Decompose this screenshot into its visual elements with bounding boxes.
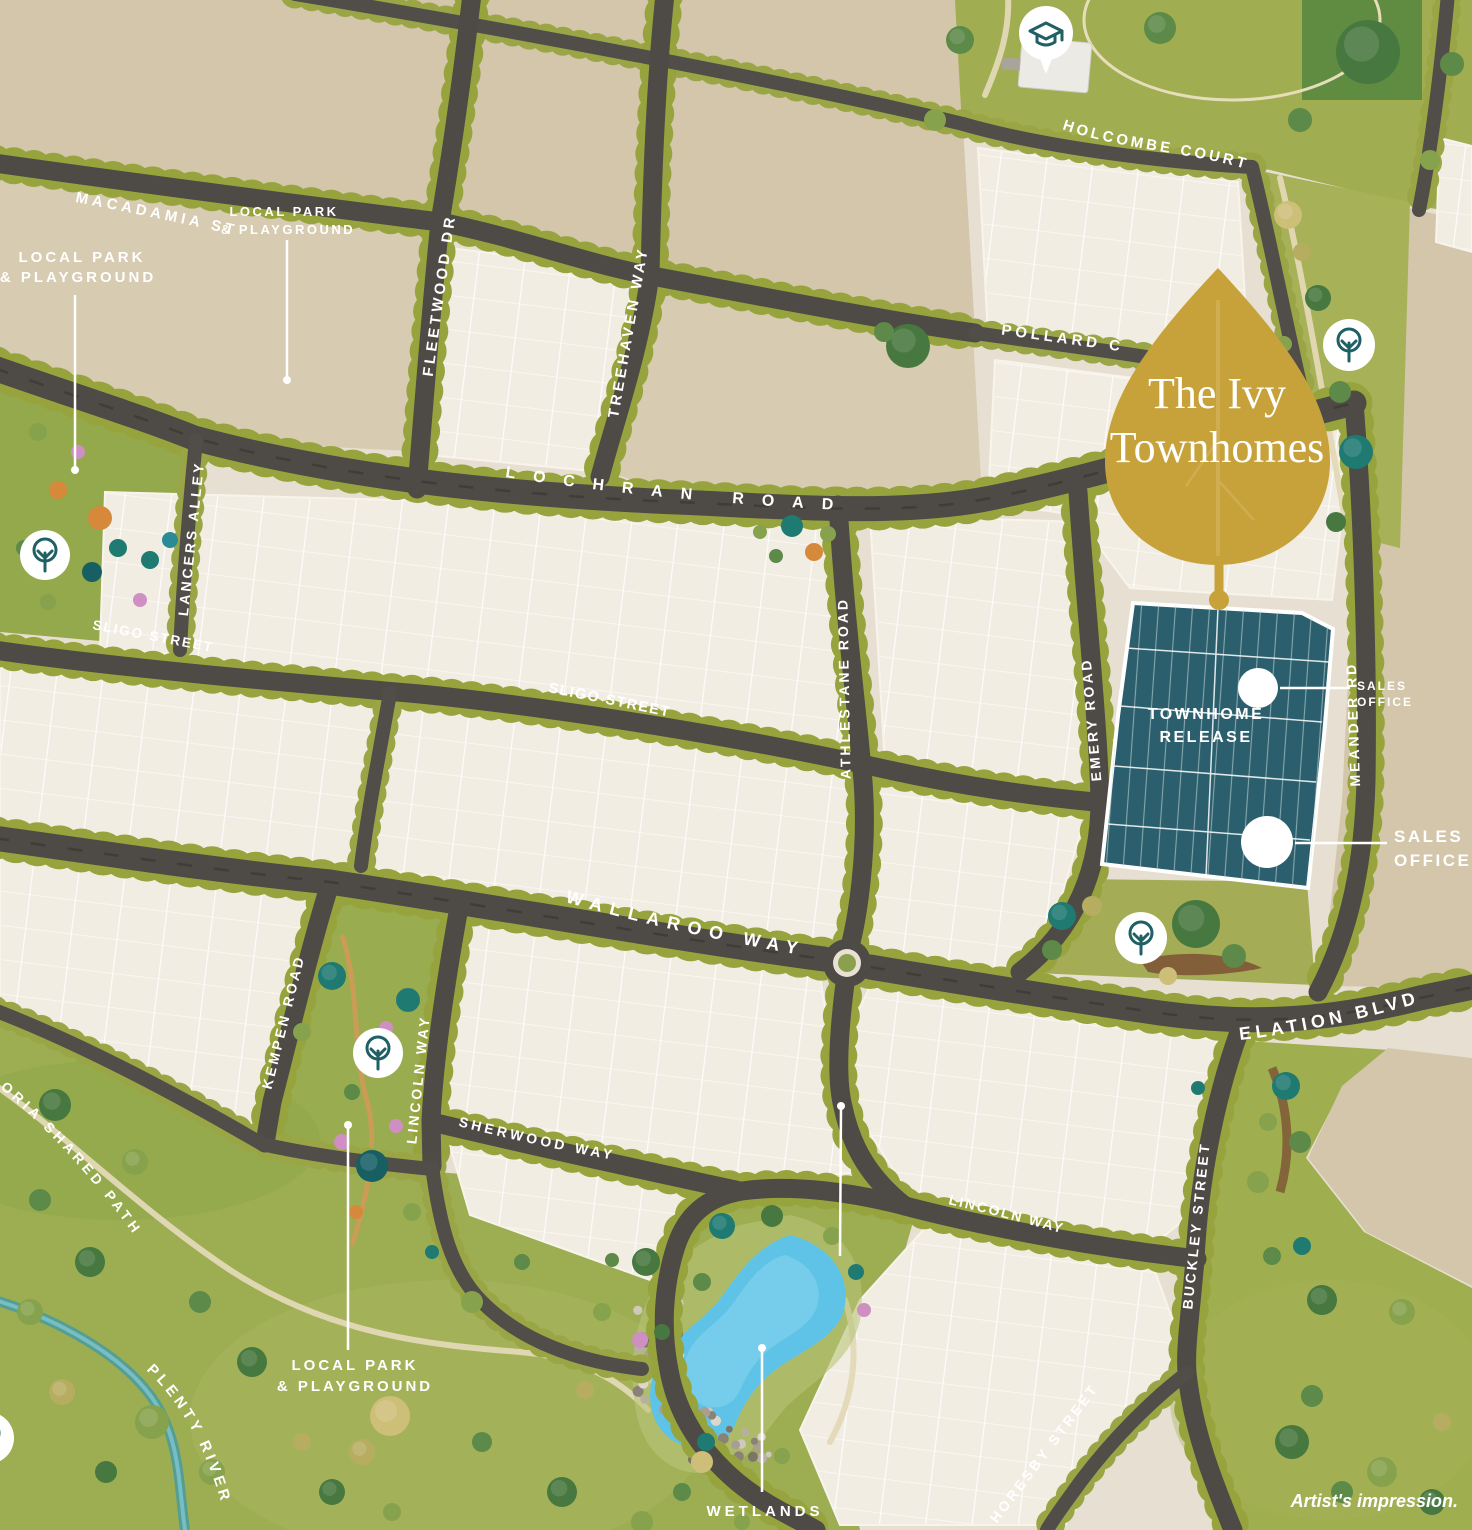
pebble — [751, 1438, 758, 1445]
tree — [1159, 967, 1177, 985]
tree — [389, 1119, 403, 1133]
tree-highlight — [375, 1400, 397, 1422]
tree-highlight — [125, 1152, 139, 1166]
leaf-title-line2: Townhomes — [1110, 423, 1324, 472]
park-tree-icon — [353, 1028, 403, 1078]
tree-highlight — [352, 1442, 366, 1456]
info-glyph: i — [1262, 822, 1273, 864]
tree-highlight — [551, 1480, 568, 1497]
tree — [805, 543, 823, 561]
tree — [29, 423, 47, 441]
tree — [1326, 512, 1346, 532]
tree-highlight — [1343, 438, 1362, 457]
tree — [133, 593, 147, 607]
tree — [396, 988, 420, 1012]
tree — [383, 1503, 401, 1521]
school-building-wing — [1002, 57, 1021, 71]
tree-highlight — [360, 1153, 378, 1171]
tree — [774, 1448, 790, 1464]
tree — [403, 1203, 421, 1221]
park-tree-icon — [1323, 319, 1375, 371]
callout-text: LOCAL PARK — [19, 249, 146, 266]
tree-highlight — [139, 1408, 158, 1427]
info-icon: i — [1238, 668, 1278, 708]
tree — [1191, 1081, 1205, 1095]
tree — [1082, 896, 1102, 916]
tree-highlight — [1371, 1460, 1388, 1477]
pebble — [748, 1452, 758, 1462]
callout-text: & PLAYGROUND — [277, 1378, 433, 1395]
callout-text: LOCAL PARK — [229, 204, 338, 219]
roundabout — [823, 939, 871, 987]
tree — [576, 1381, 594, 1399]
callout-text: SALES — [1394, 827, 1463, 846]
tree — [632, 1332, 648, 1348]
leaf-title-line1: The Ivy — [1148, 369, 1286, 418]
tree — [49, 481, 67, 499]
tree-highlight — [1279, 1428, 1298, 1447]
tree — [1301, 1385, 1323, 1407]
tree-highlight — [712, 1216, 726, 1230]
tree-highlight — [1344, 26, 1379, 61]
road-label-athlestane: ATHLESTANE ROAD — [834, 597, 853, 779]
tree — [781, 515, 803, 537]
tree — [693, 1273, 711, 1291]
callout-text: SALES — [1357, 679, 1407, 693]
tree — [29, 1189, 51, 1211]
tree — [109, 539, 127, 557]
tree — [82, 562, 102, 582]
tree — [1042, 940, 1062, 960]
park-tree-icon — [20, 530, 70, 580]
tree — [605, 1253, 619, 1267]
tree — [344, 1084, 360, 1100]
tree — [857, 1303, 871, 1317]
tree-highlight — [43, 1092, 61, 1110]
tree-highlight — [1052, 905, 1067, 920]
leaf-stem-dot — [1209, 590, 1229, 610]
tree — [349, 1205, 363, 1219]
tree-highlight — [241, 1350, 258, 1367]
tree — [472, 1432, 492, 1452]
tree-highlight — [1148, 15, 1166, 33]
callout-text: LOCAL PARK — [292, 1357, 419, 1374]
tree — [71, 445, 85, 459]
callout-text: & PLAYGROUND — [0, 269, 156, 286]
tree — [924, 109, 946, 131]
tree — [1293, 243, 1311, 261]
tree — [461, 1291, 483, 1313]
pebble — [633, 1306, 642, 1315]
callout-text: TOWNHOME — [1148, 706, 1265, 723]
tree — [293, 1023, 311, 1041]
tree — [1293, 1237, 1311, 1255]
tree — [293, 1433, 311, 1451]
tree — [141, 551, 159, 569]
tree — [1222, 944, 1246, 968]
tree — [769, 549, 783, 563]
tree — [88, 506, 112, 530]
tree-highlight — [1308, 288, 1322, 302]
masterplan-map: MACADAMIA ST HOLCOMBE COURT LOCHRAN ROAD… — [0, 0, 1472, 1530]
tree — [848, 1264, 864, 1280]
tree — [1288, 108, 1312, 132]
tree — [1440, 52, 1464, 76]
tree — [753, 525, 767, 539]
tree — [1329, 381, 1351, 403]
tree — [697, 1433, 715, 1451]
callout-text: RELEASE — [1159, 729, 1252, 746]
tree — [514, 1254, 530, 1270]
tree-highlight — [892, 328, 916, 352]
tree-highlight — [322, 1482, 336, 1496]
tree — [673, 1483, 691, 1501]
masterplan-page: MACADAMIA ST HOLCOMBE COURT LOCHRAN ROAD… — [0, 0, 1472, 1530]
tree-highlight — [1276, 1075, 1291, 1090]
tree — [823, 1227, 841, 1245]
pebble — [726, 1426, 733, 1433]
callout-text: OFFICE — [1357, 695, 1413, 709]
tree — [189, 1291, 211, 1313]
info-icon: i — [1241, 816, 1293, 868]
pebble — [640, 1396, 648, 1404]
tree-highlight — [1178, 905, 1204, 931]
tree — [874, 322, 894, 342]
callout-text: & PLAYGROUND — [221, 222, 355, 237]
tree-highlight — [636, 1251, 651, 1266]
tree — [593, 1303, 611, 1321]
tree — [691, 1451, 713, 1473]
tree-highlight — [52, 1382, 66, 1396]
tree-highlight — [1311, 1288, 1328, 1305]
artists-impression-note: Artist's impression. — [1290, 1491, 1458, 1511]
tree — [820, 526, 836, 542]
tree — [162, 532, 178, 548]
tree — [40, 594, 56, 610]
tree — [1263, 1247, 1281, 1265]
tree — [1289, 1131, 1311, 1153]
tree-highlight — [20, 1302, 34, 1316]
tree — [1259, 1113, 1277, 1131]
tree — [654, 1324, 670, 1340]
tree-highlight — [322, 965, 337, 980]
pebble — [741, 1428, 749, 1436]
pebble — [731, 1440, 740, 1449]
tree-highlight — [1392, 1302, 1406, 1316]
tree — [1420, 150, 1440, 170]
tree-highlight — [950, 29, 965, 44]
tree — [425, 1245, 439, 1259]
tree — [1247, 1171, 1269, 1193]
callout-text: OFFICE — [1394, 851, 1471, 870]
info-glyph: i — [1254, 674, 1262, 705]
tree — [1433, 1413, 1451, 1431]
tree-highlight — [79, 1250, 96, 1267]
callout-wetlands: WETLANDS — [707, 1503, 824, 1520]
park-tree-icon — [1115, 912, 1167, 964]
tree-highlight — [1278, 204, 1293, 219]
tree — [95, 1461, 117, 1483]
tree — [761, 1205, 783, 1227]
